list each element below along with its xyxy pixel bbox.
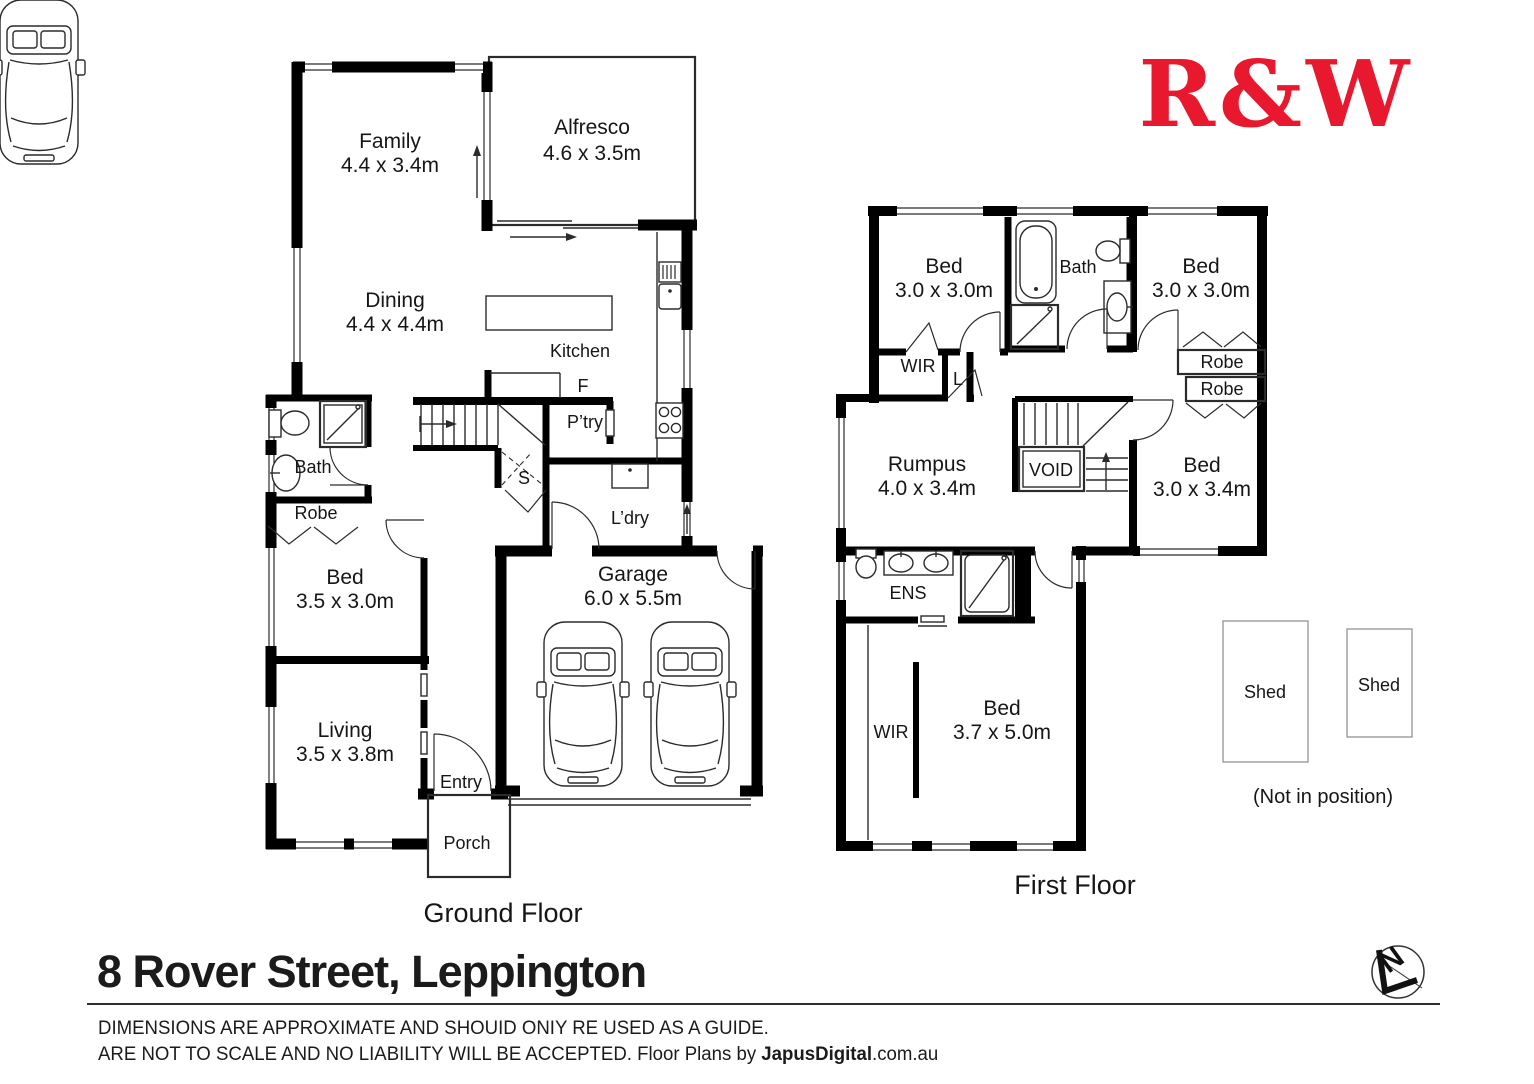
toilet-icon-first: [1096, 239, 1130, 263]
room-label-bed4: Bed: [983, 697, 1020, 720]
room-label-bath-ground: Bath: [294, 457, 331, 477]
room-label-living: Living: [318, 719, 373, 742]
room-label-kitchen: Kitchen: [550, 341, 610, 361]
pantry-door: [606, 410, 614, 436]
room-label-alfresco: Alfresco: [554, 116, 630, 139]
floorplan-brand-suffix: .com.au: [872, 1044, 938, 1065]
floorplan-canvas: Family 4.4 x 3.4m Alfresco 4.6 x 3.5m Di…: [0, 0, 1534, 1084]
room-label-robe-ground: Robe: [294, 503, 337, 523]
shower-icon-first: [1011, 305, 1058, 349]
ens-toilet-icon: [856, 549, 876, 578]
property-address-title: 8 Rover Street, Leppington: [97, 946, 646, 998]
floorplan-brand-name: JapusDigital: [761, 1044, 872, 1065]
ground-stairs: [420, 404, 546, 512]
garage-door: [508, 799, 751, 805]
first-floor-title: First Floor: [1014, 870, 1136, 900]
room-label-ens: ENS: [889, 583, 926, 603]
kitchen-sink-icon: [659, 262, 681, 309]
room-label-laundry: L’dry: [611, 508, 649, 528]
shed2-label: Shed: [1358, 675, 1400, 695]
agency-logo: R&W: [1126, 44, 1426, 145]
room-label-bed3: Bed: [1183, 454, 1220, 477]
room-label-bed2: Bed: [1182, 255, 1219, 278]
toilet-icon: [269, 410, 309, 437]
fridge-nook: [490, 373, 560, 398]
room-label-linen: L: [953, 369, 963, 389]
disclaimer-line2: ARE NOT TO SCALE AND NO LIABILITY WILL B…: [98, 1042, 938, 1068]
room-label-wir: WIR: [901, 356, 936, 376]
first-robes: [1178, 332, 1265, 418]
room-label-bath-first: Bath: [1059, 257, 1096, 277]
basin-icon-first: [1104, 281, 1133, 333]
ground-bath-fittings: [269, 401, 368, 491]
room-label-fridge: F: [578, 376, 589, 396]
laundry-fittings: [552, 464, 648, 549]
room-dims-bed4: 3.7 x 5.0m: [953, 721, 1051, 744]
ground-floor-title: Ground Floor: [423, 898, 582, 928]
sheds: Shed Shed (Not in position): [1223, 621, 1412, 808]
ens-shelf: [918, 616, 947, 626]
ens-basins-icon: [884, 551, 953, 575]
room-label-dining: Dining: [365, 289, 425, 312]
room-label-wir2: WIR: [874, 722, 909, 742]
first-floor-plan: Bed 3.0 x 3.0m Bath Bed 3.0 x 3.0m WIR L…: [835, 204, 1268, 900]
garage-side-door: [717, 551, 755, 589]
room-dims-rumpus: 4.0 x 3.4m: [878, 477, 976, 500]
first-exterior-walls: [836, 206, 1268, 851]
cooktop-icon: [656, 403, 683, 438]
disclaimer-text: DIMENSIONS ARE APPROXIMATE AND SHOUID ON…: [98, 1016, 938, 1068]
footer-divider: [87, 1003, 1440, 1005]
north-compass-icon: N: [1372, 940, 1424, 998]
disclaimer-line1: DIMENSIONS ARE APPROXIMATE AND SHOUID ON…: [98, 1016, 938, 1042]
room-label-robe1: Robe: [1200, 352, 1243, 372]
ens-shower-icon: [961, 551, 1013, 616]
room-label-void: VOID: [1029, 460, 1073, 480]
ground-bed-door: [386, 520, 424, 558]
room-dims-alfresco: 4.6 x 3.5m: [543, 142, 641, 165]
room-dims-bed1: 3.0 x 3.0m: [895, 279, 993, 302]
room-dims-garage: 6.0 x 5.5m: [584, 587, 682, 610]
room-label-store: S: [518, 468, 530, 488]
room-label-pantry: P’try: [567, 412, 603, 432]
room-label-family: Family: [359, 130, 421, 153]
sheds-note: (Not in position): [1253, 786, 1393, 808]
room-label-rumpus: Rumpus: [888, 453, 966, 476]
disclaimer-line2-text: ARE NOT TO SCALE AND NO LIABILITY WILL B…: [98, 1044, 761, 1065]
room-dims-bed-ground: 3.5 x 3.0m: [296, 590, 394, 613]
ens-fittings: [856, 549, 1013, 626]
robe-bifold-doors: [268, 526, 358, 544]
room-label-robe2: Robe: [1200, 379, 1243, 399]
room-label-porch: Porch: [443, 833, 490, 853]
room-label-garage: Garage: [598, 563, 668, 586]
shower-icon: [320, 401, 366, 447]
bathtub-icon: [1016, 221, 1056, 303]
laundry-tub-icon: [612, 464, 648, 488]
room-dims-living: 3.5 x 3.8m: [296, 743, 394, 766]
room-dims-bed2: 3.0 x 3.0m: [1152, 279, 1250, 302]
floorplan-sheet: Family 4.4 x 3.4m Alfresco 4.6 x 3.5m Di…: [0, 0, 1534, 1084]
room-dims-family: 4.4 x 3.4m: [341, 154, 439, 177]
room-label-bed1: Bed: [925, 255, 962, 278]
ground-floor-plan: Family 4.4 x 3.4m Alfresco 4.6 x 3.5m Di…: [0, 0, 763, 928]
room-label-entry: Entry: [440, 772, 482, 792]
room-dims-bed3: 3.0 x 3.4m: [1153, 478, 1251, 501]
room-label-bed-ground: Bed: [326, 566, 363, 589]
kitchen-island: [486, 296, 612, 330]
shed1-label: Shed: [1244, 682, 1286, 702]
room-dims-dining: 4.4 x 4.4m: [346, 313, 444, 336]
